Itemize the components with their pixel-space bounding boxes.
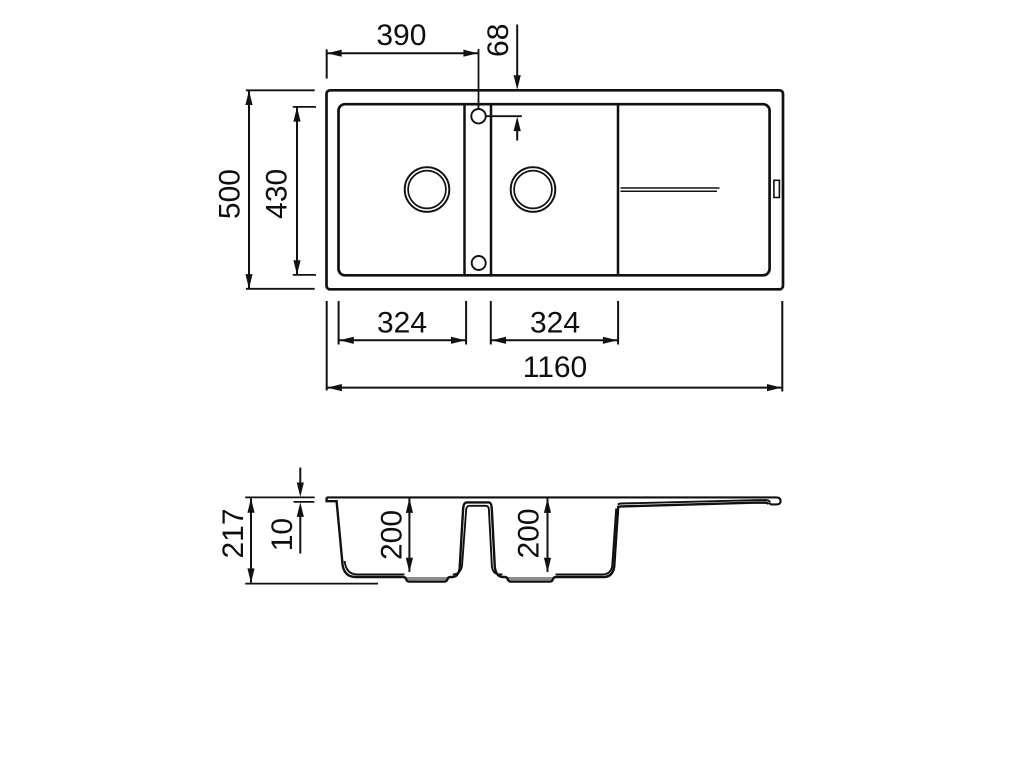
svg-text:500: 500 bbox=[214, 169, 247, 219]
svg-text:200: 200 bbox=[513, 508, 546, 558]
svg-text:217: 217 bbox=[217, 508, 250, 558]
svg-text:430: 430 bbox=[260, 169, 293, 219]
svg-text:324: 324 bbox=[530, 306, 580, 339]
svg-text:68: 68 bbox=[482, 24, 515, 57]
svg-text:1160: 1160 bbox=[523, 351, 588, 384]
svg-text:390: 390 bbox=[376, 19, 426, 52]
svg-text:200: 200 bbox=[376, 510, 409, 560]
svg-text:324: 324 bbox=[377, 306, 427, 339]
svg-text:10: 10 bbox=[266, 518, 299, 551]
